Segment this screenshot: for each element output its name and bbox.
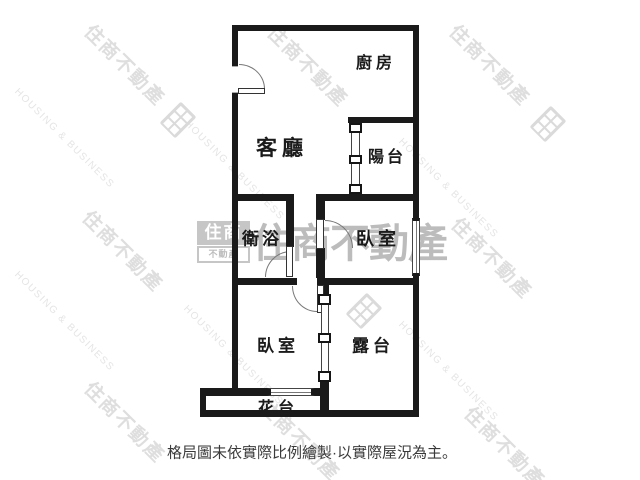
bathroom-door-leaf (286, 246, 293, 277)
watermark-brand-en: HOUSING & BUSINESS (12, 86, 116, 190)
wall-top (232, 25, 419, 31)
room-label-kitchen: 廚房 (356, 49, 396, 73)
room-label-balcony: 陽台 (368, 143, 406, 167)
room-label-bedroom-upper: 臥室 (356, 225, 400, 251)
wall-bedroom2-bottom-left (200, 388, 267, 396)
watermark-brand-zh: 住商不動產 (262, 19, 355, 112)
wall-bottom (200, 410, 419, 417)
watermark-brand-zh: 住商不動產 (459, 400, 552, 480)
bedroom-upper-door-leaf (316, 219, 324, 249)
entrance-door-leaf (238, 88, 265, 94)
watermark-brand-zh: 住商不動產 (79, 375, 172, 468)
wall-mid1-right (316, 194, 419, 201)
room-label-living-room: 客廳 (256, 132, 308, 162)
window-cap (318, 333, 331, 343)
entrance-jamb (232, 66, 238, 67)
wall-bedroom2-bottom-right (315, 388, 324, 396)
watermark-brand-zh: 住商不動產 (77, 204, 170, 297)
room-label-terrace: 露台 (352, 332, 394, 357)
wall-mid2-left (232, 278, 297, 285)
watermark-brand-en: HOUSING & BUSINESS (396, 319, 500, 423)
bedroom-upper-window (412, 218, 420, 276)
window-cap (349, 155, 362, 164)
watermark-brand-zh: 住商不動產 (79, 18, 172, 111)
room-label-flower-bed: 花台 (258, 394, 298, 418)
wall-bathroom-right (286, 194, 294, 247)
window-cap (349, 123, 362, 133)
window-cap (349, 184, 362, 194)
floor-plan-image: 住商不動產 住商不動產 住商不動產 住商不動產 住商不動產 住商不動產 住商不動… (0, 0, 640, 480)
wall-bedroom1-left-b (316, 248, 325, 278)
watermark-logo-cube-icon (346, 293, 383, 330)
wall-mid1-left (232, 194, 293, 201)
bedroom-lower-door-arc (292, 286, 317, 312)
watermark-brand-zh: 住商不動產 (444, 18, 537, 111)
wall-bedroom1-left-a (316, 194, 325, 220)
window-cap (318, 371, 331, 382)
room-label-bathroom: 衛浴 (242, 225, 282, 250)
wall-mid2-right (317, 278, 419, 285)
watermark-brand-en: HOUSING & BUSINESS (12, 269, 116, 373)
entrance-door-arc (239, 64, 265, 89)
wall-left-upper (232, 25, 238, 67)
room-label-bedroom-lower: 臥室 (257, 332, 299, 357)
window-cap (318, 294, 331, 305)
watermark-logo-cube-icon (530, 106, 567, 143)
wall-left-lower (232, 93, 238, 388)
disclaimer-caption: 格局圖未依實際比例繪製·以實際屋況為主。 (167, 442, 457, 463)
